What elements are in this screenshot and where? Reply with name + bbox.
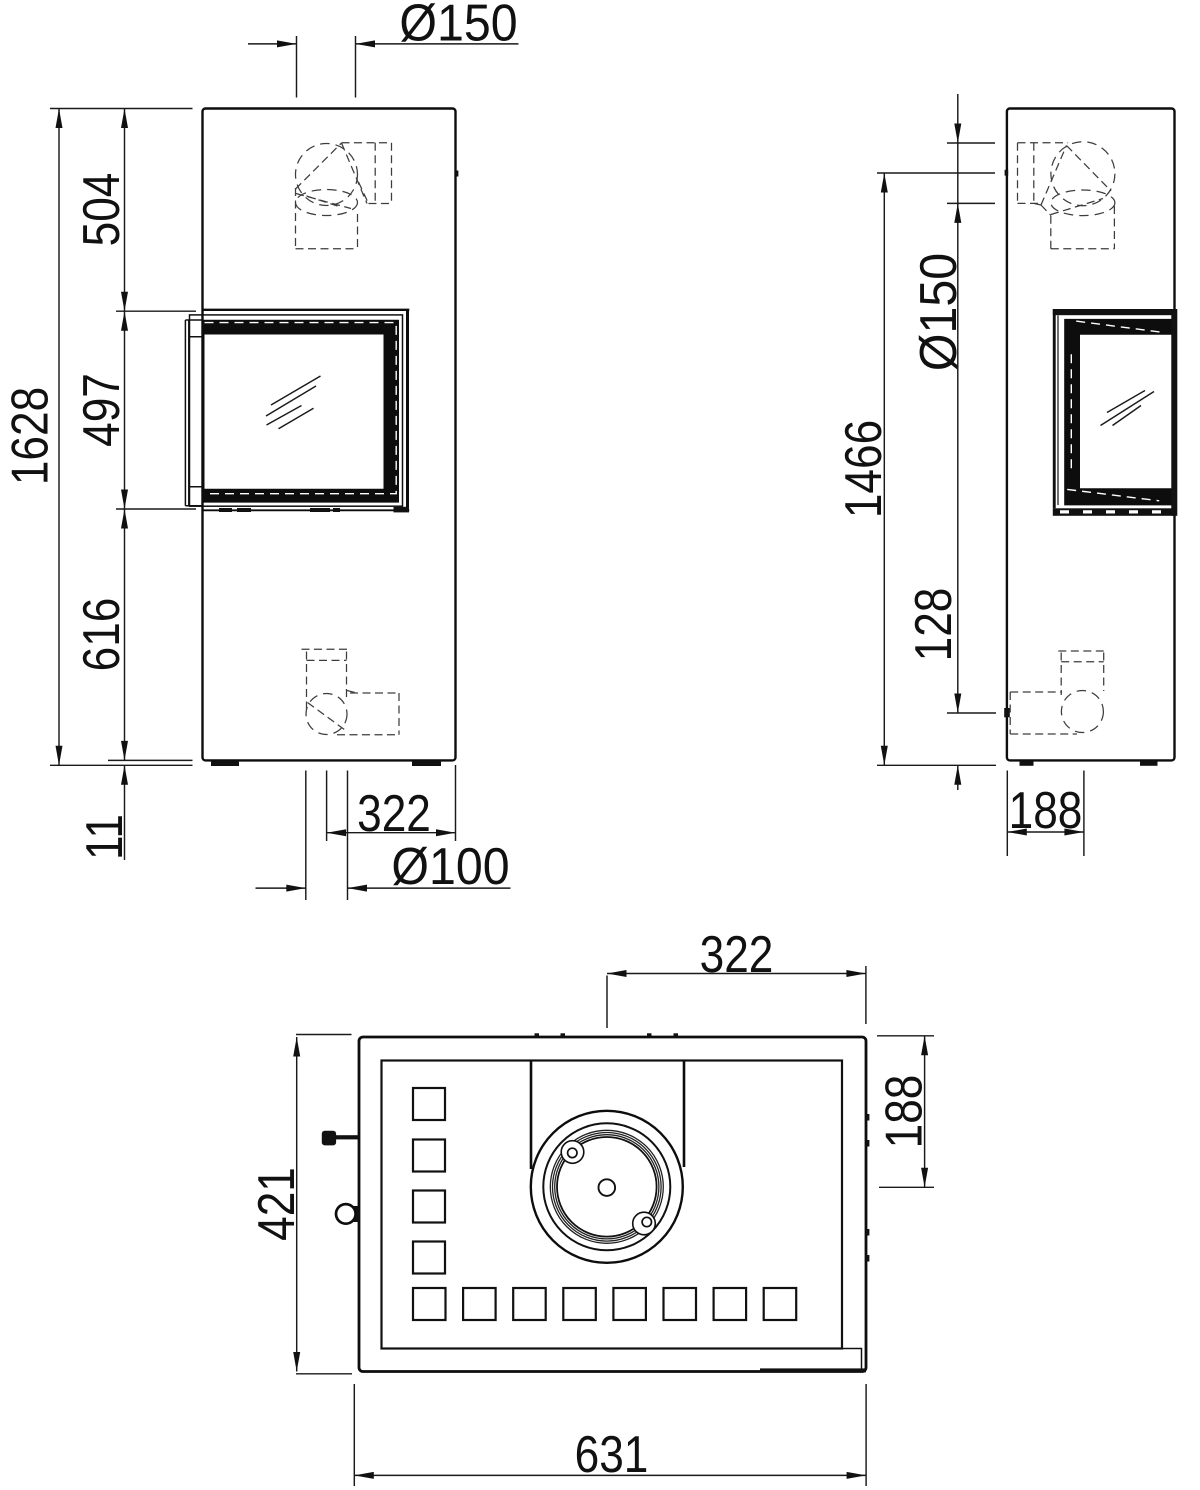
svg-text:Ø100: Ø100 (391, 837, 509, 895)
svg-text:128: 128 (905, 588, 963, 662)
svg-text:1628: 1628 (1, 387, 59, 485)
svg-text:322: 322 (700, 926, 774, 984)
svg-text:504: 504 (73, 173, 131, 247)
svg-text:616: 616 (73, 598, 131, 672)
svg-text:497: 497 (73, 373, 131, 447)
svg-text:Ø150: Ø150 (399, 0, 517, 52)
svg-text:188: 188 (875, 1075, 933, 1149)
svg-text:322: 322 (357, 785, 431, 843)
svg-text:1466: 1466 (835, 420, 893, 518)
svg-text:421: 421 (248, 1167, 306, 1241)
svg-text:Ø150: Ø150 (909, 253, 967, 371)
svg-text:631: 631 (575, 1426, 649, 1484)
svg-text:11: 11 (76, 814, 134, 860)
svg-text:188: 188 (1009, 782, 1083, 840)
